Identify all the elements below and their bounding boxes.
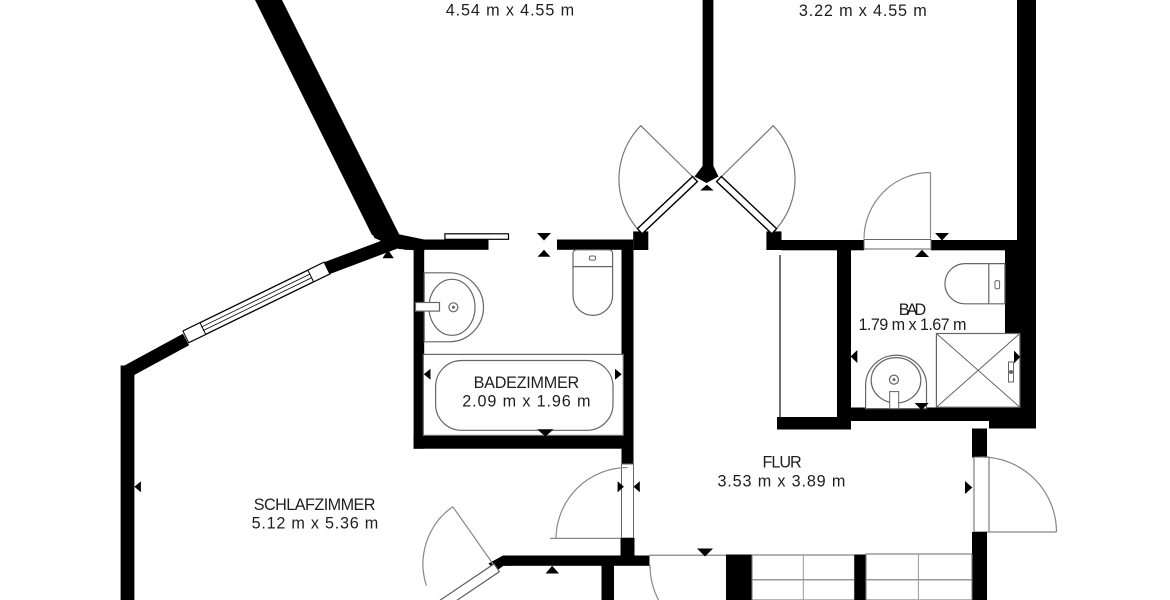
svg-text:3.53 m x 3.89 m: 3.53 m x 3.89 m [717, 473, 845, 491]
svg-text:2.09 m x 1.96 m: 2.09 m x 1.96 m [462, 392, 590, 410]
svg-text:BADEZIMMER: BADEZIMMER [474, 374, 580, 392]
svg-text:5.12 m x 5.36 m: 5.12 m x 5.36 m [252, 514, 379, 532]
svg-text:SCHLAFZIMMER: SCHLAFZIMMER [254, 496, 376, 514]
svg-text:3.22 m x 4.55 m: 3.22 m x 4.55 m [799, 2, 927, 20]
svg-text:4.54 m x 4.55 m: 4.54 m x 4.55 m [446, 2, 574, 20]
svg-text:FLUR: FLUR [763, 454, 802, 472]
svg-text:1.79 m x 1.67 m: 1.79 m x 1.67 m [859, 316, 967, 334]
